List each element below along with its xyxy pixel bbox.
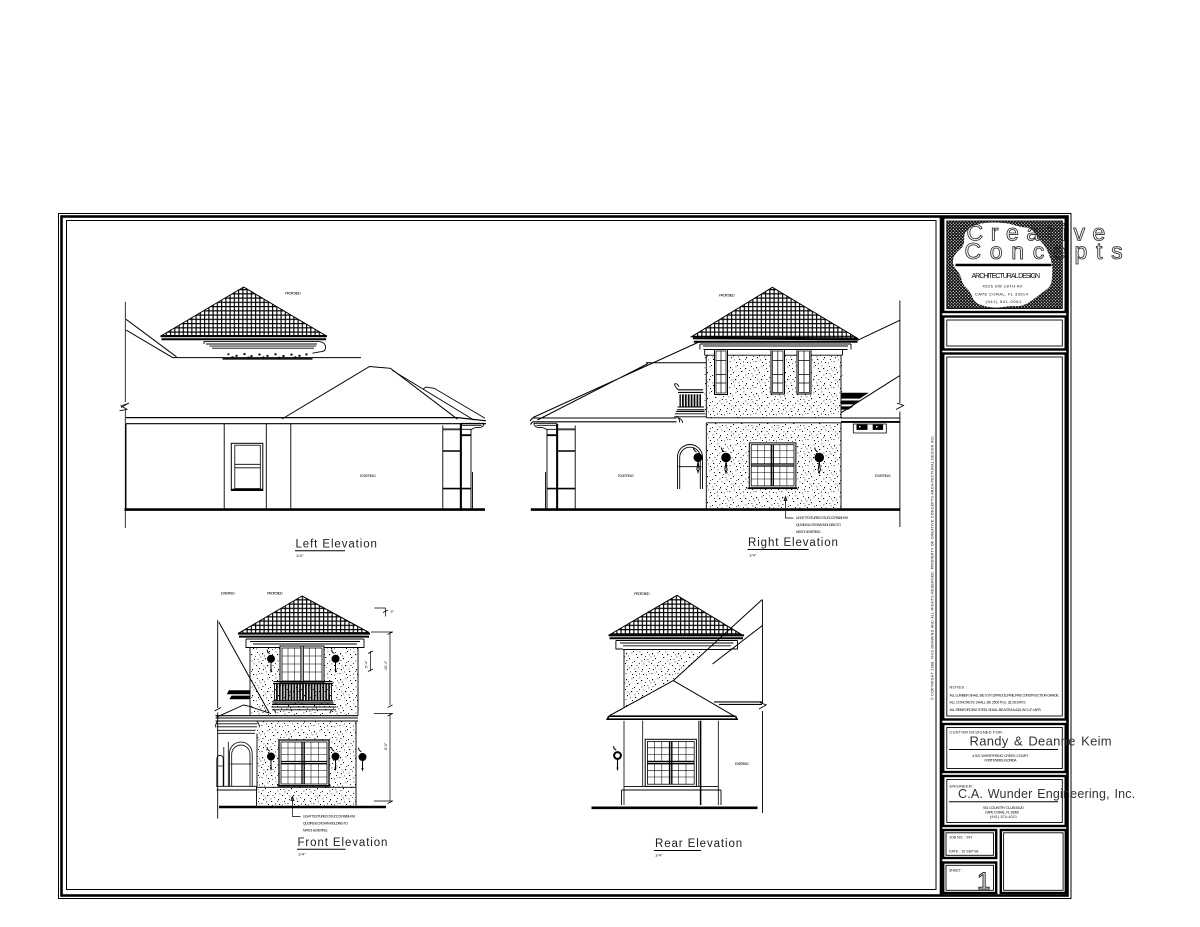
svg-text:LIGHT TEXTURED STUCCO FINISH W: LIGHT TEXTURED STUCCO FINISH W/ bbox=[796, 516, 848, 520]
svg-text:1/4": 1/4" bbox=[655, 853, 663, 858]
svg-text:5'-4": 5'-4" bbox=[365, 660, 369, 668]
svg-text:CAPE CORAL, FL 33990: CAPE CORAL, FL 33990 bbox=[985, 811, 1019, 815]
svg-text:EXISTING: EXISTING bbox=[618, 473, 634, 478]
svg-text:PROPOSED: PROPOSED bbox=[285, 291, 301, 296]
svg-text:1: 1 bbox=[977, 868, 990, 895]
svg-text:PROPOSED: PROPOSED bbox=[719, 293, 735, 298]
svg-text:EXISTING: EXISTING bbox=[735, 761, 749, 766]
svg-text:LIGHT TEXTURED STUCCO FINISH W: LIGHT TEXTURED STUCCO FINISH W/ bbox=[303, 815, 355, 819]
svg-text:Front Elevation: Front Elevation bbox=[298, 837, 389, 849]
svg-text:Right Elevation: Right Elevation bbox=[748, 537, 839, 549]
svg-text:EXISTING: EXISTING bbox=[221, 591, 235, 596]
svg-text:ALL LUMBER SHALL BE S.Y.P. (SP: ALL LUMBER SHALL BE S.Y.P. (SPRUCE,PINE,… bbox=[950, 694, 1060, 698]
svg-text:(941) 574-4021: (941) 574-4021 bbox=[990, 815, 1017, 819]
svg-text:(941) 541-0061: (941) 541-0061 bbox=[986, 299, 1023, 304]
svg-text:Rear Elevation: Rear Elevation bbox=[655, 838, 743, 850]
svg-text:MATCH EXISTING.: MATCH EXISTING. bbox=[796, 530, 821, 534]
svg-text:QUOINS & CROWN MOLDING TO: QUOINS & CROWN MOLDING TO bbox=[796, 523, 841, 527]
svg-text:EXISTING: EXISTING bbox=[875, 473, 891, 478]
svg-text:JOB NO. : 997: JOB NO. : 997 bbox=[949, 836, 972, 840]
svg-text:10'-4": 10'-4" bbox=[384, 660, 388, 670]
svg-text:1/4": 1/4" bbox=[749, 553, 757, 558]
svg-text:8'-0": 8'-0" bbox=[384, 742, 388, 750]
svg-text:ALL CONCRETE SHALL BE 2500 P.S: ALL CONCRETE SHALL BE 2500 P.S.I. @ 28 D… bbox=[950, 701, 1027, 705]
svg-text:C.A. Wunder Engineering, Inc.: C.A. Wunder Engineering, Inc. bbox=[958, 787, 1135, 801]
svg-text:PROPOSED: PROPOSED bbox=[634, 591, 650, 596]
svg-text:# 521 WHISPERING CREEK COURT: # 521 WHISPERING CREEK COURT bbox=[973, 754, 1030, 758]
svg-text:EXISTING: EXISTING bbox=[360, 473, 376, 478]
svg-text:CAPE CORAL, FL 33914: CAPE CORAL, FL 33914 bbox=[975, 292, 1029, 297]
svg-text:Randy & Deanne Keim: Randy & Deanne Keim bbox=[970, 734, 1112, 749]
svg-text:1/4": 1/4" bbox=[296, 553, 304, 558]
svg-text:Left Elevation: Left Elevation bbox=[296, 539, 378, 551]
svg-text:4526 SW 18TH AV: 4526 SW 18TH AV bbox=[983, 284, 1023, 289]
svg-text:Concepts: Concepts bbox=[965, 238, 1132, 264]
svg-text:1/4": 1/4" bbox=[298, 852, 306, 857]
svg-text:NOTES :: NOTES : bbox=[950, 685, 967, 690]
svg-text:ARCHITECTURAL DESIGN: ARCHITECTURAL DESIGN bbox=[972, 273, 1041, 280]
svg-text:931 COUNTRY CLUB BLVD: 931 COUNTRY CLUB BLVD bbox=[983, 806, 1024, 810]
svg-text:ALL REINFORCING STEEL SHALL BE: ALL REINFORCING STEEL SHALL BE ASTM A-61… bbox=[950, 708, 1042, 712]
svg-text:FORT MYERS, FLORIDA: FORT MYERS, FLORIDA bbox=[985, 759, 1018, 763]
svg-text:QUOINS & CROWN MOLDING TO: QUOINS & CROWN MOLDING TO bbox=[303, 822, 348, 826]
svg-text:PROPOSED: PROPOSED bbox=[267, 591, 283, 596]
svg-text:MATCH EXISTING.: MATCH EXISTING. bbox=[303, 829, 328, 833]
svg-text:DATE : 10 SEP 98: DATE : 10 SEP 98 bbox=[949, 850, 978, 854]
svg-text:SHEET :: SHEET : bbox=[949, 869, 963, 873]
svg-text:© COPYRIGHT 1998, THIS DRAWING: © COPYRIGHT 1998, THIS DRAWING AND ALL R… bbox=[931, 435, 935, 700]
